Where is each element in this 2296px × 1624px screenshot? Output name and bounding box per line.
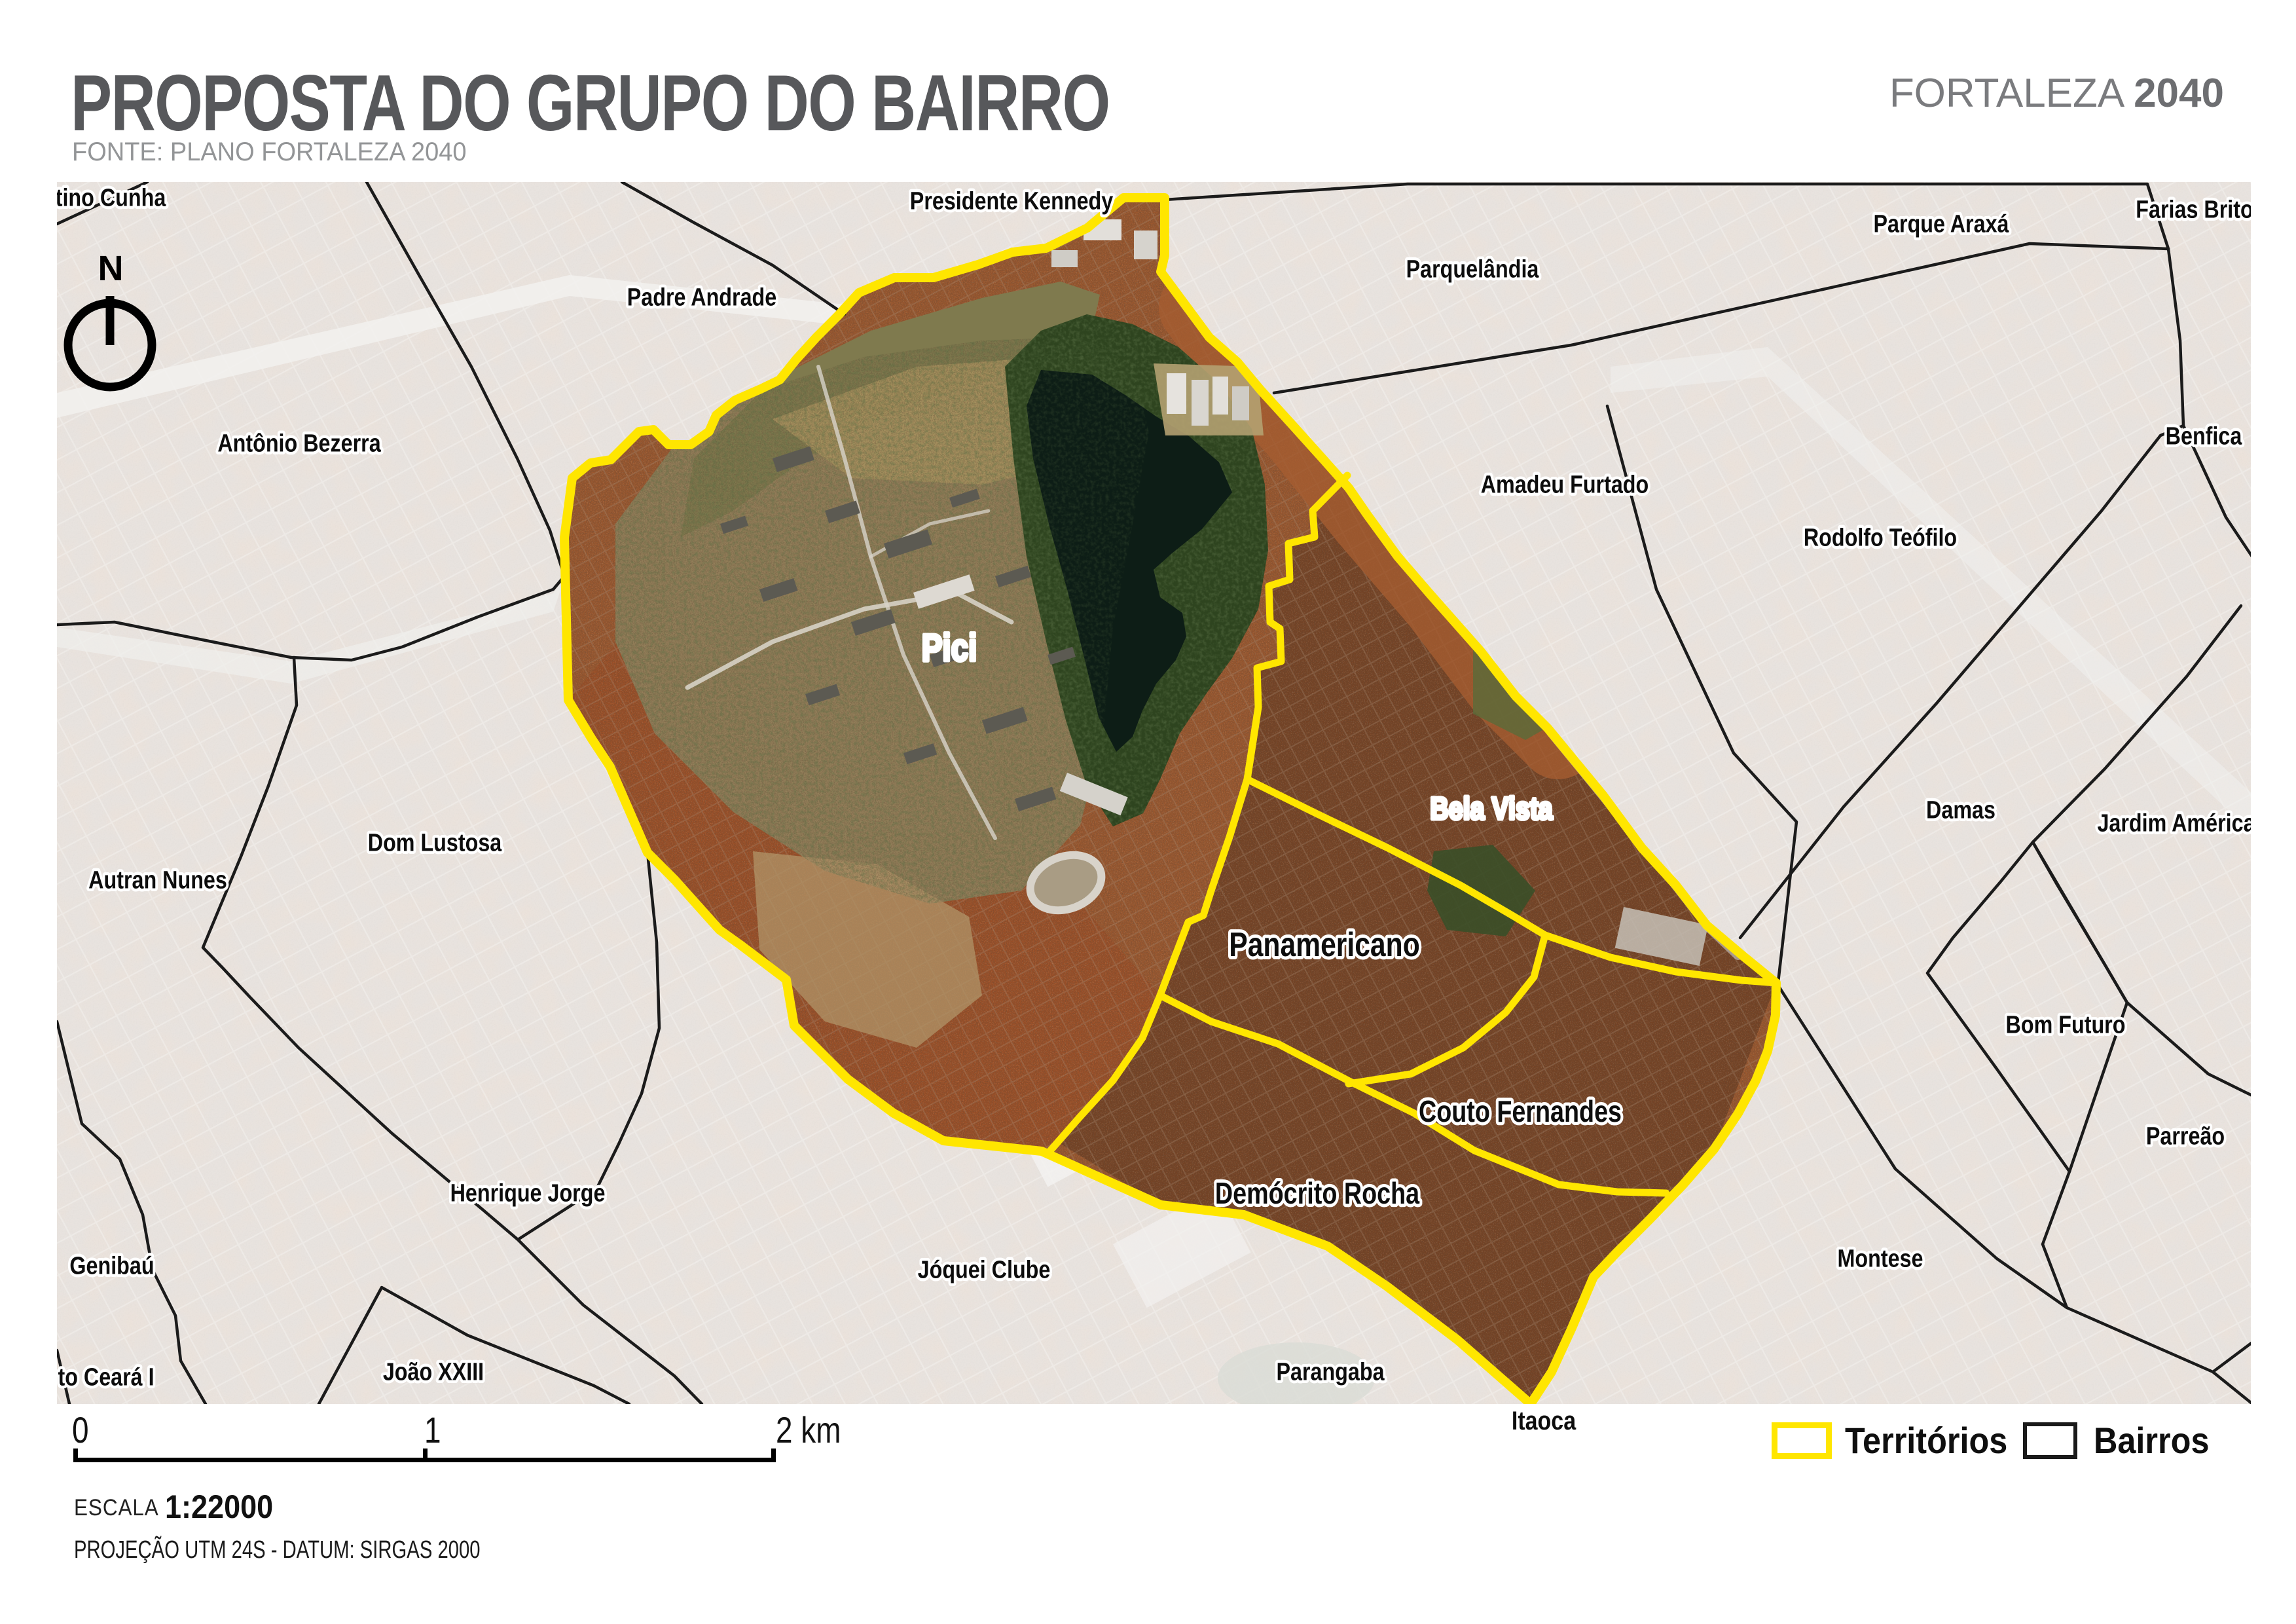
svg-text:Bela Vista: Bela Vista xyxy=(1430,791,1553,826)
svg-text:Jóquei Clube: Jóquei Clube xyxy=(918,1256,1051,1283)
svg-text:Couto Fernandes: Couto Fernandes xyxy=(1419,1094,1622,1128)
svg-text:Demócrito Rocha: Demócrito Rocha xyxy=(1215,1176,1420,1209)
svg-text:Benfica: Benfica xyxy=(2166,422,2242,450)
svg-text:Parque Araxá: Parque Araxá xyxy=(1874,210,2009,238)
svg-text:to Ceará I: to Ceará I xyxy=(58,1363,154,1391)
svg-text:Parangaba: Parangaba xyxy=(1276,1358,1384,1386)
svg-text:Presidente Kennedy: Presidente Kennedy xyxy=(910,187,1114,215)
svg-text:Genibaú: Genibaú xyxy=(69,1252,154,1280)
svg-text:Henrique Jorge: Henrique Jorge xyxy=(450,1179,606,1207)
svg-text:Damas: Damas xyxy=(1926,796,1995,824)
svg-text:Rodolfo Teófilo: Rodolfo Teófilo xyxy=(1804,524,1957,551)
svg-text:Montese: Montese xyxy=(1838,1245,1923,1272)
svg-text:Farias Brito: Farias Brito xyxy=(2136,196,2253,223)
svg-text:Jardim América: Jardim América xyxy=(2097,809,2255,837)
svg-text:tino Cunha: tino Cunha xyxy=(56,184,166,212)
svg-text:Parreão: Parreão xyxy=(2146,1122,2225,1150)
svg-text:Parquelândia: Parquelândia xyxy=(1406,255,1539,283)
svg-text:Pici: Pici xyxy=(922,627,977,670)
svg-text:Itaoca: Itaoca xyxy=(1512,1405,1576,1435)
svg-text:Antônio Bezerra: Antônio Bezerra xyxy=(217,430,381,457)
svg-text:João XXIII: João XXIII xyxy=(383,1358,484,1386)
svg-text:Padre Andrade: Padre Andrade xyxy=(627,284,776,311)
svg-text:Autran Nunes: Autran Nunes xyxy=(88,866,227,894)
svg-text:Dom Lustosa: Dom Lustosa xyxy=(368,829,502,857)
svg-text:Bom Futuro: Bom Futuro xyxy=(2006,1011,2126,1039)
svg-text:Panamericano: Panamericano xyxy=(1229,926,1419,964)
svg-text:Amadeu Furtado: Amadeu Furtado xyxy=(1481,471,1649,498)
svg-text:N: N xyxy=(98,249,124,288)
